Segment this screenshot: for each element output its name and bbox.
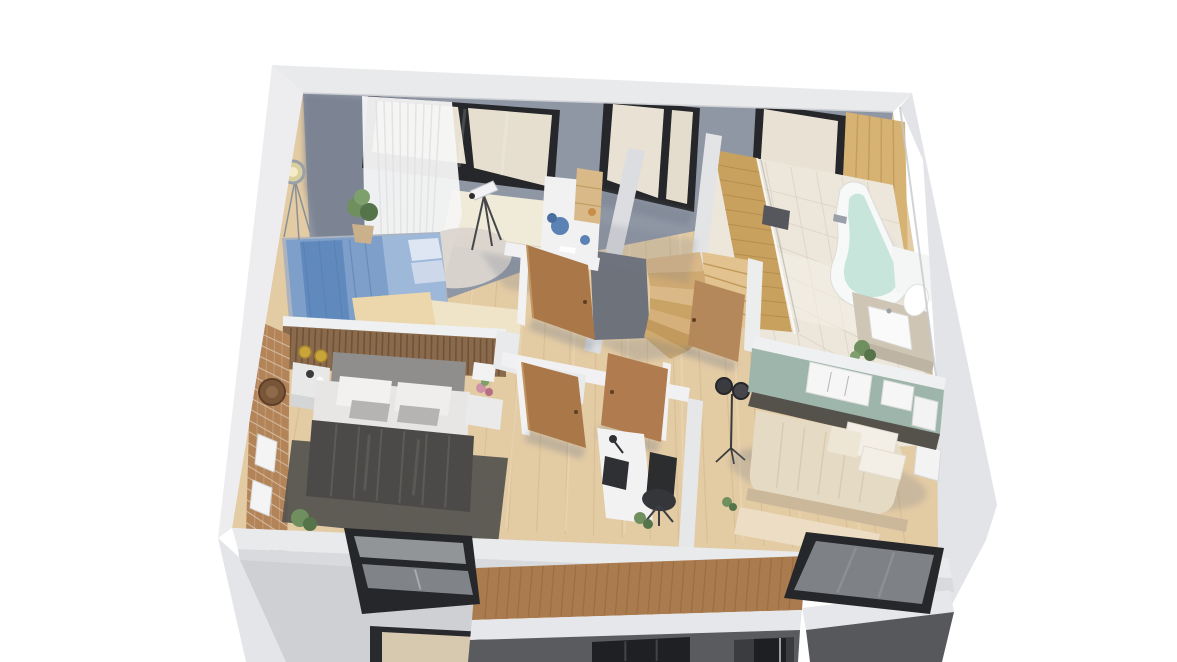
kids-chair-back [547, 213, 557, 223]
kids-pillow-b [411, 260, 446, 284]
sink-faucet [887, 309, 892, 314]
kids-plant-c [354, 189, 370, 205]
telescope-lens [469, 193, 475, 199]
flowers-pink-b [485, 388, 493, 396]
sconce-b [315, 350, 327, 362]
nightstand-vase [306, 370, 314, 378]
bath-plant-b [864, 349, 876, 361]
facade-door [754, 638, 786, 662]
lamp2-head-a [716, 378, 732, 394]
lamp2-head-b [733, 383, 749, 399]
door-a-handle [583, 300, 587, 304]
bed2-blanket [306, 420, 474, 512]
kids-desk-clutter-a [580, 235, 590, 245]
wall-hanging-inner [266, 386, 278, 398]
floorplan-render [0, 0, 1177, 662]
kids-pillow-a [408, 238, 442, 261]
office-laptop [602, 456, 629, 490]
lamp2-pole [731, 394, 732, 448]
office-lamp-head [609, 435, 617, 443]
kids-plant-pot [352, 224, 374, 244]
nightstand-right [465, 394, 503, 430]
slat-frame [472, 362, 496, 382]
bl-plant-b [303, 517, 317, 531]
b3-plant-b [729, 503, 737, 511]
kids-desk-shelf [574, 168, 603, 224]
door-d-handle [610, 390, 614, 394]
rw-frame-a [912, 396, 938, 431]
office-plant-b [643, 519, 653, 529]
door-c-handle [574, 410, 578, 414]
kids-plant-b [360, 203, 378, 221]
kids-desk-clutter-b [588, 208, 596, 216]
sconce-a [299, 346, 311, 358]
facade-left-pane [382, 632, 476, 662]
door-b-handle [692, 318, 696, 322]
scene-svg [0, 0, 1177, 662]
rw-frame-b [914, 443, 941, 481]
